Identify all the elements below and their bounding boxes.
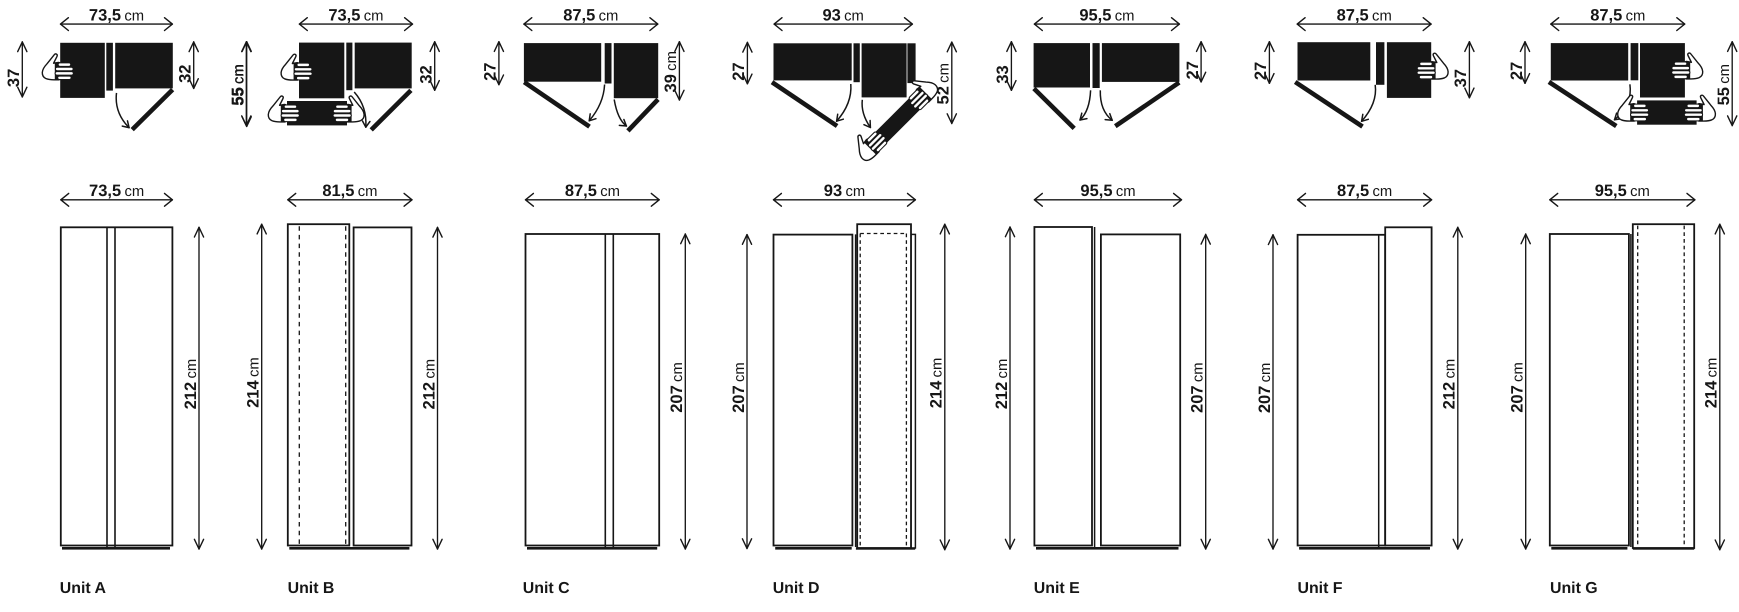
svg-text:73,5 cm: 73,5 cm <box>89 182 144 200</box>
svg-text:73,5 cm: 73,5 cm <box>328 7 383 25</box>
svg-text:212 cm: 212 cm <box>993 359 1011 410</box>
svg-text:32: 32 <box>177 65 195 83</box>
svg-text:Unit D: Unit D <box>773 580 820 597</box>
svg-text:Unit F: Unit F <box>1298 580 1343 597</box>
svg-text:55 cm: 55 cm <box>1715 64 1733 105</box>
svg-text:207 cm: 207 cm <box>1256 363 1274 414</box>
svg-text:81,5 cm: 81,5 cm <box>322 182 377 200</box>
svg-text:27: 27 <box>482 63 500 81</box>
svg-text:27: 27 <box>1252 62 1270 80</box>
svg-text:207 cm: 207 cm <box>1189 362 1207 413</box>
svg-text:Unit C: Unit C <box>523 580 570 597</box>
svg-text:207 cm: 207 cm <box>668 362 686 413</box>
svg-text:87,5 cm: 87,5 cm <box>1590 7 1645 25</box>
svg-text:207 cm: 207 cm <box>1509 362 1527 413</box>
svg-text:207 cm: 207 cm <box>730 362 748 413</box>
svg-text:95,5 cm: 95,5 cm <box>1079 7 1134 25</box>
svg-text:Unit A: Unit A <box>60 580 107 597</box>
svg-text:93 cm: 93 cm <box>822 7 863 25</box>
svg-text:Unit B: Unit B <box>288 580 335 597</box>
svg-text:87,5 cm: 87,5 cm <box>1337 7 1392 25</box>
svg-text:37: 37 <box>5 69 23 87</box>
svg-text:33: 33 <box>994 65 1012 83</box>
svg-text:Unit G: Unit G <box>1550 580 1598 597</box>
svg-text:32: 32 <box>418 65 436 83</box>
svg-text:55 cm: 55 cm <box>230 64 248 105</box>
svg-text:87,5 cm: 87,5 cm <box>565 182 620 200</box>
svg-text:39 cm: 39 cm <box>662 51 680 92</box>
svg-text:52 cm: 52 cm <box>935 63 953 104</box>
svg-text:214 cm: 214 cm <box>928 358 946 409</box>
svg-text:27: 27 <box>1184 61 1202 79</box>
svg-text:87,5 cm: 87,5 cm <box>563 7 618 25</box>
svg-text:87,5 cm: 87,5 cm <box>1337 182 1392 200</box>
svg-text:214 cm: 214 cm <box>1703 358 1721 409</box>
svg-text:212 cm: 212 cm <box>420 359 438 410</box>
svg-text:95,5 cm: 95,5 cm <box>1595 182 1650 200</box>
svg-text:212 cm: 212 cm <box>1441 359 1459 410</box>
svg-text:93 cm: 93 cm <box>824 182 865 200</box>
svg-text:73,5 cm: 73,5 cm <box>89 7 144 25</box>
svg-text:95,5 cm: 95,5 cm <box>1080 182 1135 200</box>
svg-text:27: 27 <box>1508 62 1526 80</box>
svg-text:37: 37 <box>1452 69 1470 87</box>
svg-text:212 cm: 212 cm <box>182 359 200 410</box>
svg-text:27: 27 <box>730 62 748 80</box>
svg-text:Unit E: Unit E <box>1034 580 1080 597</box>
svg-text:214 cm: 214 cm <box>245 357 263 408</box>
